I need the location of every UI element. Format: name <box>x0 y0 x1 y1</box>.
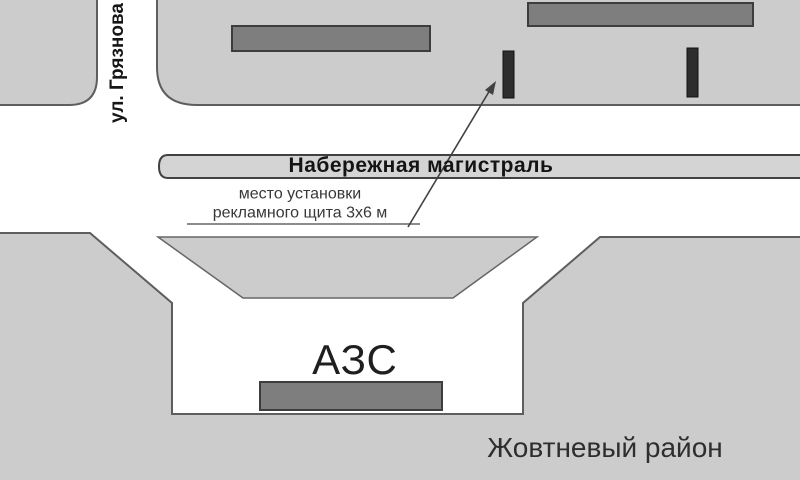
city-block-top-left <box>0 0 97 105</box>
district-label: Жовтневый район <box>487 432 722 464</box>
street-label: ул. Грязнова <box>107 3 129 123</box>
billboard-marker-existing <box>687 48 698 97</box>
billboard-annotation: место установки рекламного щита 3х6 м <box>213 186 388 223</box>
billboard-annotation-line2: рекламного щита 3х6 м <box>213 204 388 223</box>
gas-station-label: АЗС <box>312 336 398 384</box>
site-plan-map: ул. Грязнова Набережная магистраль место… <box>0 0 800 480</box>
billboard-annotation-line1: место установки <box>213 186 388 205</box>
building-block-1 <box>232 26 430 51</box>
building-block-2 <box>528 3 753 26</box>
highway-label: Набережная магистраль <box>289 154 554 178</box>
gas-station-building <box>260 382 442 410</box>
billboard-marker-proposed <box>503 51 514 98</box>
